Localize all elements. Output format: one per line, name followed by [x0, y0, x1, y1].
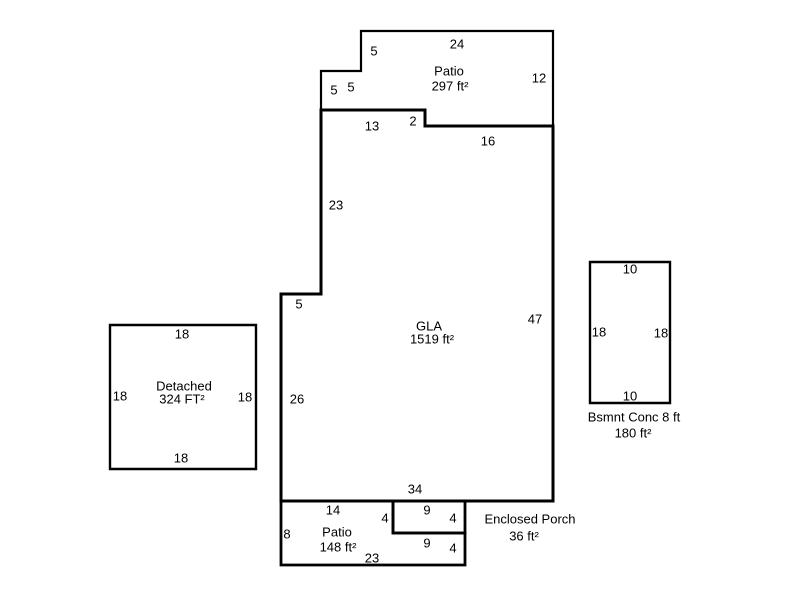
porch-area: 36 ft² [509, 530, 539, 543]
dim-patio-top-24: 24 [450, 38, 464, 51]
dim-patio-bottom-top-14: 14 [326, 504, 340, 517]
dim-gla-top-13: 13 [365, 120, 379, 133]
dim-porch-bottom-9: 9 [423, 537, 430, 550]
porch-name: Enclosed Porch [484, 513, 575, 526]
dim-patio-bottom-left-8: 8 [283, 528, 290, 541]
dim-porch-left-4: 4 [381, 512, 388, 525]
patio-top-name: Patio [434, 65, 464, 78]
dim-patio-top-left-5: 5 [370, 45, 377, 58]
patio-bottom-area: 148 ft² [320, 541, 357, 554]
patio-bottom-name: Patio [322, 526, 352, 539]
floorplan-sketch: GLA1519 ft²13216235472634Patio297 ft²524… [0, 0, 800, 600]
dim-gla-left-upper-23: 23 [329, 199, 343, 212]
dim-detached-top-18: 18 [175, 328, 189, 341]
detached-area: 324 FT² [159, 393, 205, 406]
patio-top-area: 297 ft² [432, 80, 469, 93]
dim-patio-top-step-h-5: 5 [347, 81, 354, 94]
dim-patio-top-step-v-5: 5 [330, 84, 337, 97]
dim-gla-bottom-34: 34 [408, 483, 422, 496]
dim-gla-right-47: 47 [528, 313, 542, 326]
dim-porch-top-9: 9 [423, 504, 430, 517]
dim-patio-bottom-bottom-23: 23 [365, 552, 379, 565]
bsmnt-area: 180 ft² [615, 427, 652, 440]
dim-detached-left-18: 18 [113, 390, 127, 403]
dim-gla-jog-5: 5 [295, 298, 302, 311]
dim-bsmnt-left-18: 18 [592, 326, 606, 339]
dim-bsmnt-top-10: 10 [623, 263, 637, 276]
bsmnt-name: Bsmnt Conc 8 ft [588, 411, 680, 424]
dim-gla-topright-16: 16 [481, 135, 495, 148]
gla-area: 1519 ft² [410, 333, 454, 346]
dim-detached-bottom-18: 18 [174, 452, 188, 465]
dim-patio-bottom-right-4: 4 [449, 542, 456, 555]
dim-bsmnt-right-18: 18 [654, 327, 668, 340]
dim-gla-step-2: 2 [409, 115, 416, 128]
dim-detached-right-18: 18 [238, 391, 252, 404]
dim-porch-right-4: 4 [449, 512, 456, 525]
dim-patio-top-right-12: 12 [532, 72, 546, 85]
dim-bsmnt-bottom-10: 10 [623, 390, 637, 403]
sketch-labels-layer: GLA1519 ft²13216235472634Patio297 ft²524… [0, 0, 800, 600]
dim-gla-left-lower-26: 26 [290, 393, 304, 406]
